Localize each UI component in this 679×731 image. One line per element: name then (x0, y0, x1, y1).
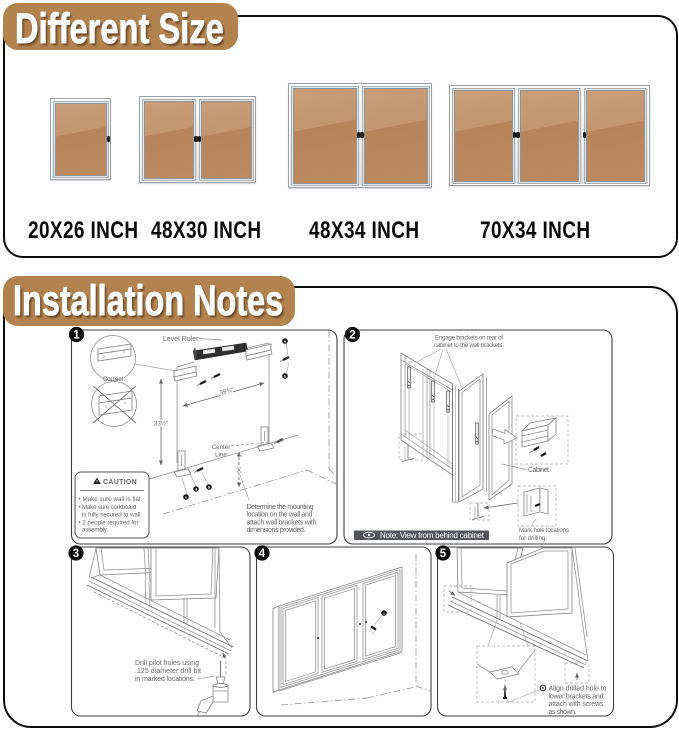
svg-text:Level Ruler: Level Ruler (163, 336, 199, 343)
svg-text:5: 5 (440, 548, 447, 560)
svg-text:CAUTION: CAUTION (103, 479, 137, 486)
svg-text:3: 3 (73, 548, 79, 560)
svg-text:• Make sure wall is flat.: • Make sure wall is flat. (79, 496, 143, 503)
svg-text:in marked locations.: in marked locations. (135, 676, 195, 683)
svg-text:Center: Center (212, 444, 231, 451)
svg-text:Cabinet: Cabinet (528, 467, 549, 474)
svg-text:Note: View from behind cabinet: Note: View from behind cabinet (380, 531, 485, 540)
svg-text:Drill pilot holes using: Drill pilot holes using (135, 660, 199, 667)
svg-text:2: 2 (349, 330, 355, 342)
svg-text:.125 diameter drill bit: .125 diameter drill bit (135, 668, 201, 675)
svg-text:attach with screws: attach with screws (549, 701, 605, 708)
svg-text:Mark hole locations: Mark hole locations (519, 527, 569, 534)
svg-text:is fully secured to wall.: is fully secured to wall. (82, 512, 142, 519)
svg-text:attach wall brackets with: attach wall brackets with (247, 519, 317, 526)
svg-text:lower brackets and: lower brackets and (549, 693, 604, 700)
svg-text:cabinet to the wall brackets.: cabinet to the wall brackets. (434, 342, 504, 349)
svg-text:location on the wall and: location on the wall and (247, 512, 313, 519)
svg-text:• Make sure corkboard: • Make sure corkboard (79, 504, 138, 511)
svg-text:4: 4 (259, 548, 266, 560)
svg-text:dimensions provided.: dimensions provided. (247, 527, 306, 534)
svg-text:Engage brackets on rear of: Engage brackets on rear of (435, 335, 503, 342)
svg-text:as shown.: as shown. (549, 709, 577, 716)
svg-text:X: X (237, 468, 242, 475)
svg-text:Align drilled hole to: Align drilled hole to (549, 686, 607, 693)
svg-text:Correct: Correct (103, 376, 124, 383)
svg-text:1: 1 (73, 330, 80, 342)
svg-text:• 2 people required for: • 2 people required for (79, 520, 139, 527)
svg-text:Determine the mounting: Determine the mounting (247, 504, 314, 511)
svg-text:i: i (383, 611, 384, 616)
svg-text:33½″: 33½″ (154, 421, 169, 428)
svg-text:assembly.: assembly. (82, 527, 108, 534)
svg-text:for drilling.: for drilling. (519, 535, 547, 542)
